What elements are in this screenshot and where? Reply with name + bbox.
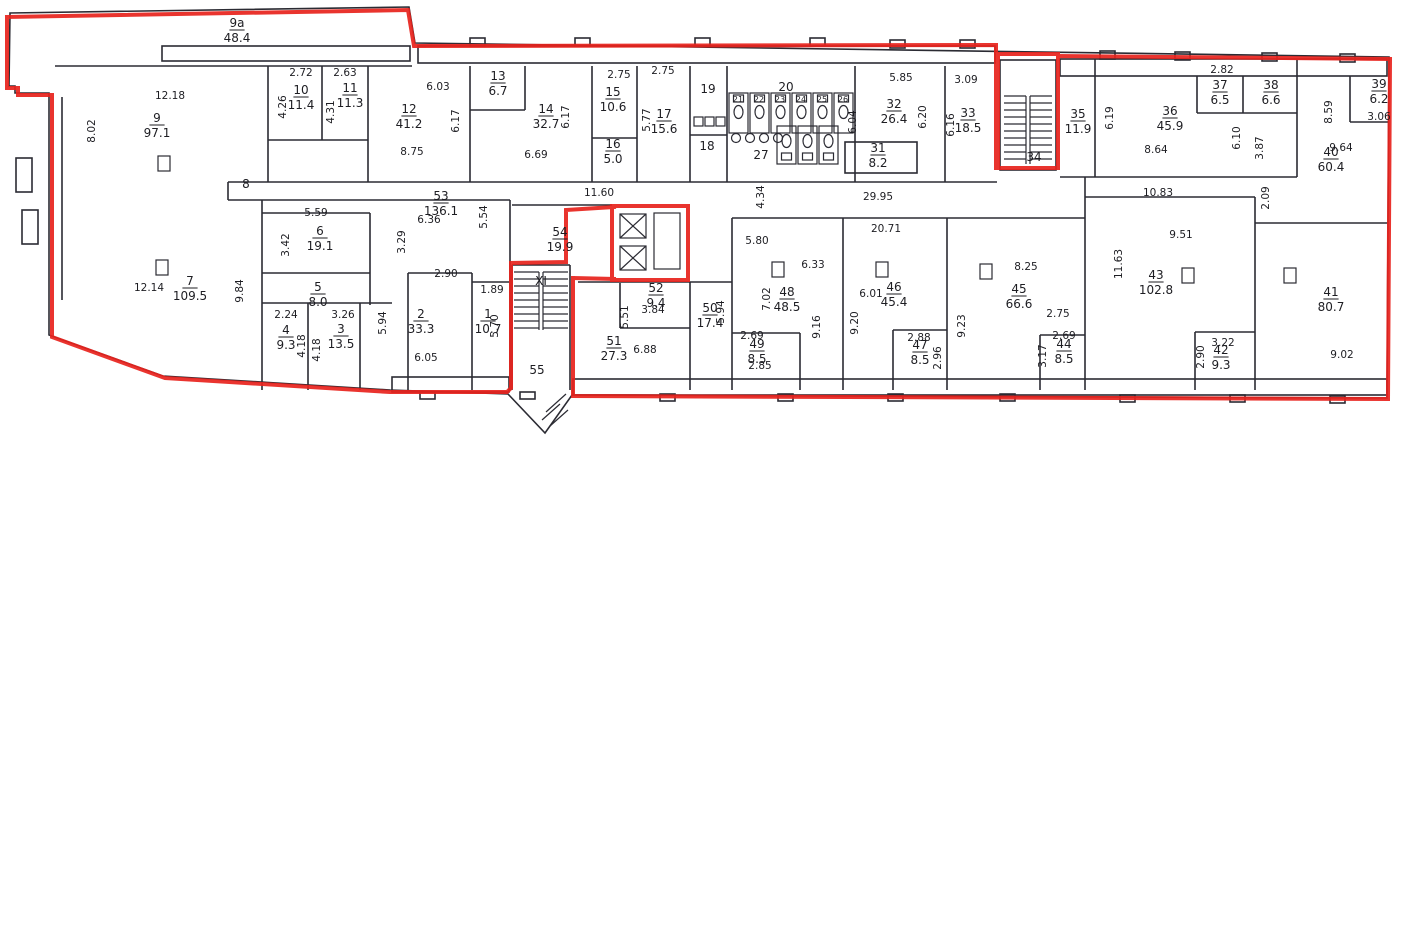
room-label-35: 3511.9	[1065, 107, 1092, 136]
room-area: 66.6	[1006, 297, 1033, 311]
room-number: 7	[186, 274, 194, 288]
dimension-text: 9.84	[234, 279, 246, 303]
fixtures	[156, 93, 1296, 426]
room-label-16: 165.0	[603, 137, 622, 166]
room-number: 48	[779, 285, 794, 299]
dimension-text: 7.02	[761, 287, 773, 310]
dimension-text: 9.51	[1169, 229, 1192, 241]
room-label-54: 5419.9	[547, 225, 574, 254]
room-label-13: 136.7	[488, 69, 507, 98]
plain-label-18: 18	[699, 139, 714, 153]
dimension-text: 2.75	[1046, 308, 1069, 320]
plain-label-26: 26	[838, 95, 848, 104]
wc-bowl-icon	[776, 106, 785, 119]
room-number: 14	[538, 102, 553, 116]
plain-label-21: 21	[733, 95, 743, 104]
dimension-text: 3.87	[1254, 136, 1266, 159]
stair-55-entry-hatch	[542, 394, 568, 426]
room-label-31: 318.2	[868, 141, 887, 170]
room-area: 8.5	[910, 353, 929, 367]
dimension-text: 6.10	[1231, 126, 1243, 149]
dimension-text: 3.17	[1037, 344, 1049, 367]
room-area: 6.5	[1210, 93, 1229, 107]
dimension-text: 4.26	[277, 95, 289, 119]
dimension-text: 4.31	[325, 100, 337, 123]
red-connector	[573, 278, 614, 279]
dimension-text: 5.94	[377, 311, 389, 335]
plain-label-22: 22	[754, 95, 764, 104]
room-number: 32	[886, 97, 901, 111]
dimension-text: 2.88	[907, 332, 930, 344]
room-number: 53	[433, 189, 448, 203]
room-area: 8.5	[1054, 352, 1073, 366]
room-number: 13	[490, 69, 505, 83]
room-area: 9.3	[1211, 358, 1230, 372]
room-area: 11.3	[337, 96, 364, 110]
room-number: 12	[401, 102, 416, 116]
room-area: 10.6	[600, 100, 627, 114]
dimension-text: 2.75	[651, 65, 674, 77]
dimension-text: 12.18	[155, 90, 185, 102]
dimension-text: 3.42	[280, 233, 292, 256]
plain-label-25: 25	[817, 95, 827, 104]
room-number: 10	[293, 83, 308, 97]
dimension-text: 2.69	[1052, 330, 1075, 342]
room-area: 8.0	[308, 295, 327, 309]
dimension-text: 4.18	[311, 338, 323, 361]
dimension-text: 2.85	[748, 360, 771, 372]
room-area: 26.4	[881, 112, 908, 126]
dimension-text: 6.19	[1104, 106, 1116, 129]
wc-bowl-icon	[797, 106, 806, 119]
room-area: 80.7	[1318, 300, 1345, 314]
room-number: 36	[1162, 104, 1177, 118]
room-label-33: 3318.5	[955, 106, 982, 135]
plain-label-23: 23	[775, 95, 785, 104]
dimension-text: 3.84	[641, 304, 665, 316]
plain-label-55: 55	[529, 363, 544, 377]
dimension-text: 2.82	[1210, 64, 1233, 76]
wc-stall	[777, 126, 796, 164]
wc-tank-icon	[824, 153, 834, 160]
dimension-text: 6.01	[859, 288, 882, 300]
dimension-text: 3.26	[331, 309, 355, 321]
wc-stall	[798, 126, 817, 164]
room-label-4: 49.3	[276, 323, 295, 352]
room-label-37: 376.5	[1210, 78, 1229, 107]
dimension-text: 3.06	[1367, 111, 1391, 123]
dimension-text: 9.20	[849, 311, 861, 334]
dimension-text: 1.89	[480, 284, 503, 296]
dimension-text: 5.51	[619, 305, 631, 328]
room-label-43: 43102.8	[1139, 268, 1173, 297]
dimension-text: 2.96	[932, 346, 944, 370]
dimension-text: 6.05	[414, 352, 437, 364]
dimension-text: 6.36	[417, 214, 441, 226]
dimension-text: 6.88	[633, 344, 656, 356]
room-number: 54	[552, 225, 567, 239]
dimension-text: 2.75	[607, 69, 630, 81]
plain-label-27: 27	[753, 148, 768, 162]
room-number: 39	[1371, 77, 1386, 91]
room-number: 51	[606, 334, 621, 348]
dimension-text: 2.90	[434, 268, 457, 280]
room-area: 19.9	[547, 240, 574, 254]
dimension-text: 2.90	[1195, 345, 1207, 368]
plain-label-20: 20	[778, 80, 793, 94]
room-label-45: 4566.6	[1006, 282, 1033, 311]
dimension-text: 5.94	[715, 300, 727, 324]
dimension-text: 6.69	[524, 149, 547, 161]
plain-label-XI: XI	[535, 274, 547, 288]
wc-bowl-icon	[734, 106, 743, 119]
dimension-text: 9.64	[1329, 142, 1353, 154]
dimension-text: 6.33	[801, 259, 824, 271]
room-label-41: 4180.7	[1318, 285, 1345, 314]
wc-bowl-icon	[803, 135, 812, 148]
room-label-9a: 9a48.4	[224, 16, 251, 45]
room-number: 37	[1212, 78, 1227, 92]
room-label-9: 997.1	[144, 111, 171, 140]
room-number: 43	[1148, 268, 1163, 282]
room-area: 19.1	[307, 239, 334, 253]
room-area: 9.3	[276, 338, 295, 352]
room-area: 13.5	[328, 337, 355, 351]
floor-plan-page: 9a48.4997.11011.41111.31241.2136.71432.7…	[0, 0, 1406, 943]
room-area: 109.5	[173, 289, 207, 303]
room-area: 6.7	[488, 84, 507, 98]
elevator-shafts	[620, 213, 680, 270]
room-label-38: 386.6	[1261, 78, 1280, 107]
room-number: 41	[1323, 285, 1338, 299]
dimension-text: 3.29	[396, 230, 408, 253]
room-area: 11.9	[1065, 122, 1092, 136]
room-number: 45	[1011, 282, 1026, 296]
dimension-text: 8.59	[1323, 100, 1335, 123]
wc-bowl-icon	[782, 135, 791, 148]
room-area: 5.0	[603, 152, 622, 166]
wc-tank-icon	[782, 153, 792, 160]
dimension-text: 5.70	[489, 314, 501, 337]
room-area: 11.4	[288, 98, 315, 112]
room-label-36: 3645.9	[1157, 104, 1184, 133]
dimension-text: 3.09	[954, 74, 977, 86]
dimension-text: 9.16	[811, 315, 823, 339]
room-number: 6	[316, 224, 324, 238]
room-area: 33.3	[408, 322, 435, 336]
dimension-text: 6.17	[560, 105, 572, 128]
room-label-46: 4645.4	[881, 280, 908, 309]
room-label-12: 1241.2	[396, 102, 423, 131]
dimension-text: 11.63	[1113, 249, 1125, 279]
dimension-text: 8.25	[1014, 261, 1037, 273]
room-number: 35	[1070, 107, 1085, 121]
room-area: 41.2	[396, 117, 423, 131]
room-area: 60.4	[1318, 160, 1345, 174]
room-number: 38	[1263, 78, 1278, 92]
room-number: 17	[656, 107, 671, 121]
room-number: 3	[337, 322, 345, 336]
dimension-text: 12.14	[134, 282, 164, 294]
dimension-text: 6.16	[945, 113, 957, 137]
dimension-text: 6.20	[917, 105, 929, 128]
room-label-15: 1510.6	[600, 85, 627, 114]
room-area: 97.1	[144, 126, 171, 140]
room-number: 4	[282, 323, 290, 337]
room-label-32: 3226.4	[881, 97, 908, 126]
dimension-text: 6.03	[426, 81, 449, 93]
room-area: 48.5	[774, 300, 801, 314]
plain-label-19: 19	[700, 82, 715, 96]
room-area: 48.4	[224, 31, 251, 45]
wc-bowl-icon	[818, 106, 827, 119]
dimension-text: 11.60	[584, 187, 614, 199]
room-area: 6.6	[1261, 93, 1280, 107]
room-number: 2	[417, 307, 425, 321]
dimension-text: 4.18	[296, 334, 308, 357]
wall-lines	[9, 7, 1389, 433]
lease-boundary-red	[7, 10, 1390, 399]
wc-stall	[819, 126, 838, 164]
dimension-text: 6.17	[450, 109, 462, 132]
plain-label-34: 34	[1026, 150, 1041, 164]
dimension-text: 29.95	[863, 191, 893, 203]
plain-label-8: 8	[242, 177, 250, 191]
room-area: 45.9	[1157, 119, 1184, 133]
room-label-2: 233.3	[408, 307, 435, 336]
wc-bowl-icon	[755, 106, 764, 119]
plain-label-24: 24	[796, 95, 806, 104]
dimension-text: 4.34	[755, 185, 767, 209]
room-area: 8.2	[868, 156, 887, 170]
room-number: 9a	[230, 16, 245, 30]
room-number: 16	[605, 137, 620, 151]
room-number: 52	[648, 281, 663, 295]
room-label-17: 1715.6	[651, 107, 678, 136]
room-area: 102.8	[1139, 283, 1173, 297]
column-symbols	[156, 156, 1296, 283]
floor-plan-canvas: 9a48.4997.11011.41111.31241.2136.71432.7…	[0, 0, 1406, 943]
dimension-text: 9.23	[956, 314, 968, 337]
dimension-text: 5.54	[478, 205, 490, 229]
dimension-text: 2.24	[274, 309, 298, 321]
dimension-text: 8.02	[86, 119, 98, 142]
wc-bowl-icon	[824, 135, 833, 148]
dimension-text: 5.85	[889, 72, 912, 84]
dimension-text: 10.83	[1143, 187, 1173, 199]
room-number: 46	[886, 280, 901, 294]
toilet-stalls	[729, 93, 853, 164]
room-area: 6.2	[1369, 92, 1388, 106]
room-area: 32.7	[533, 117, 560, 131]
room-label-11: 1111.3	[337, 81, 364, 110]
dimension-text: 8.75	[400, 146, 423, 158]
room-label-48: 4848.5	[774, 285, 801, 314]
room-label-3: 313.5	[328, 322, 355, 351]
dimension-text: 3.22	[1211, 337, 1234, 349]
room-label-39: 396.2	[1369, 77, 1388, 106]
dimension-text: 9.02	[1330, 349, 1353, 361]
dimension-text: 2.72	[289, 67, 312, 79]
room-area: 27.3	[601, 349, 628, 363]
dimension-text: 5.77	[641, 108, 653, 131]
room-number: 15	[605, 85, 620, 99]
room-number: 5	[314, 280, 322, 294]
room-area: 15.6	[651, 122, 678, 136]
red-outline-right-section	[573, 56, 1390, 399]
room-label-51: 5127.3	[601, 334, 628, 363]
room-label-6: 619.1	[307, 224, 334, 253]
room-number: 33	[960, 106, 975, 120]
dimension-text: 2.69	[740, 330, 763, 342]
room-label-10: 1011.4	[288, 83, 315, 112]
dimension-text: 2.63	[333, 67, 356, 79]
dimension-text: 20.71	[871, 223, 901, 235]
room-area: 45.4	[881, 295, 908, 309]
room-label-5: 58.0	[308, 280, 327, 309]
dimension-text: 2.09	[1260, 186, 1272, 209]
room-number: 9	[153, 111, 161, 125]
room-label-14: 1432.7	[533, 102, 560, 131]
room-number: 11	[342, 81, 357, 95]
wc-tank-icon	[803, 153, 813, 160]
dimension-text: 5.80	[745, 235, 768, 247]
dimension-text: 5.59	[304, 207, 327, 219]
dimension-text: 6.04	[847, 110, 859, 134]
dimension-text: 8.64	[1144, 144, 1168, 156]
room-label-7: 7109.5	[173, 274, 207, 303]
room-number: 31	[870, 141, 885, 155]
room-area: 18.5	[955, 121, 982, 135]
